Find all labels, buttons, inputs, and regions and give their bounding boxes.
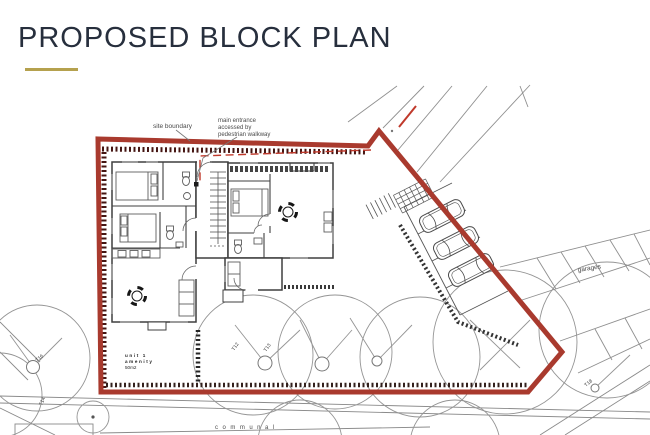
title-accent-rule [25, 68, 78, 71]
page-title: PROPOSED BLOCK PLAN [18, 22, 392, 55]
amenity-label-line1: unit 1 [125, 353, 147, 358]
tree-tag: T12 [231, 341, 241, 352]
site-boundary-label: site boundary [153, 123, 193, 130]
page-header: PROPOSED BLOCK PLAN [18, 22, 392, 71]
garages-label: garages [577, 263, 602, 274]
tree-tag: T13 [263, 342, 273, 353]
tree-tag: T16 [34, 353, 45, 363]
floor-plan [112, 161, 333, 330]
tree-tag: T14 [38, 396, 47, 406]
communal-label: communal [215, 425, 279, 431]
page-root: { "header": { "title": "PROPOSED BLOCK P… [0, 0, 650, 435]
entrance-label-line3: pedestrian walkway [218, 132, 270, 138]
amenity-label-line2: amenity [125, 359, 154, 364]
parked-car [417, 198, 495, 289]
entrance-label-line1: main entrance [218, 118, 257, 124]
amenity-label-line3: 50m2 [125, 365, 137, 370]
entrance-label-line2: accessed by [218, 125, 251, 131]
